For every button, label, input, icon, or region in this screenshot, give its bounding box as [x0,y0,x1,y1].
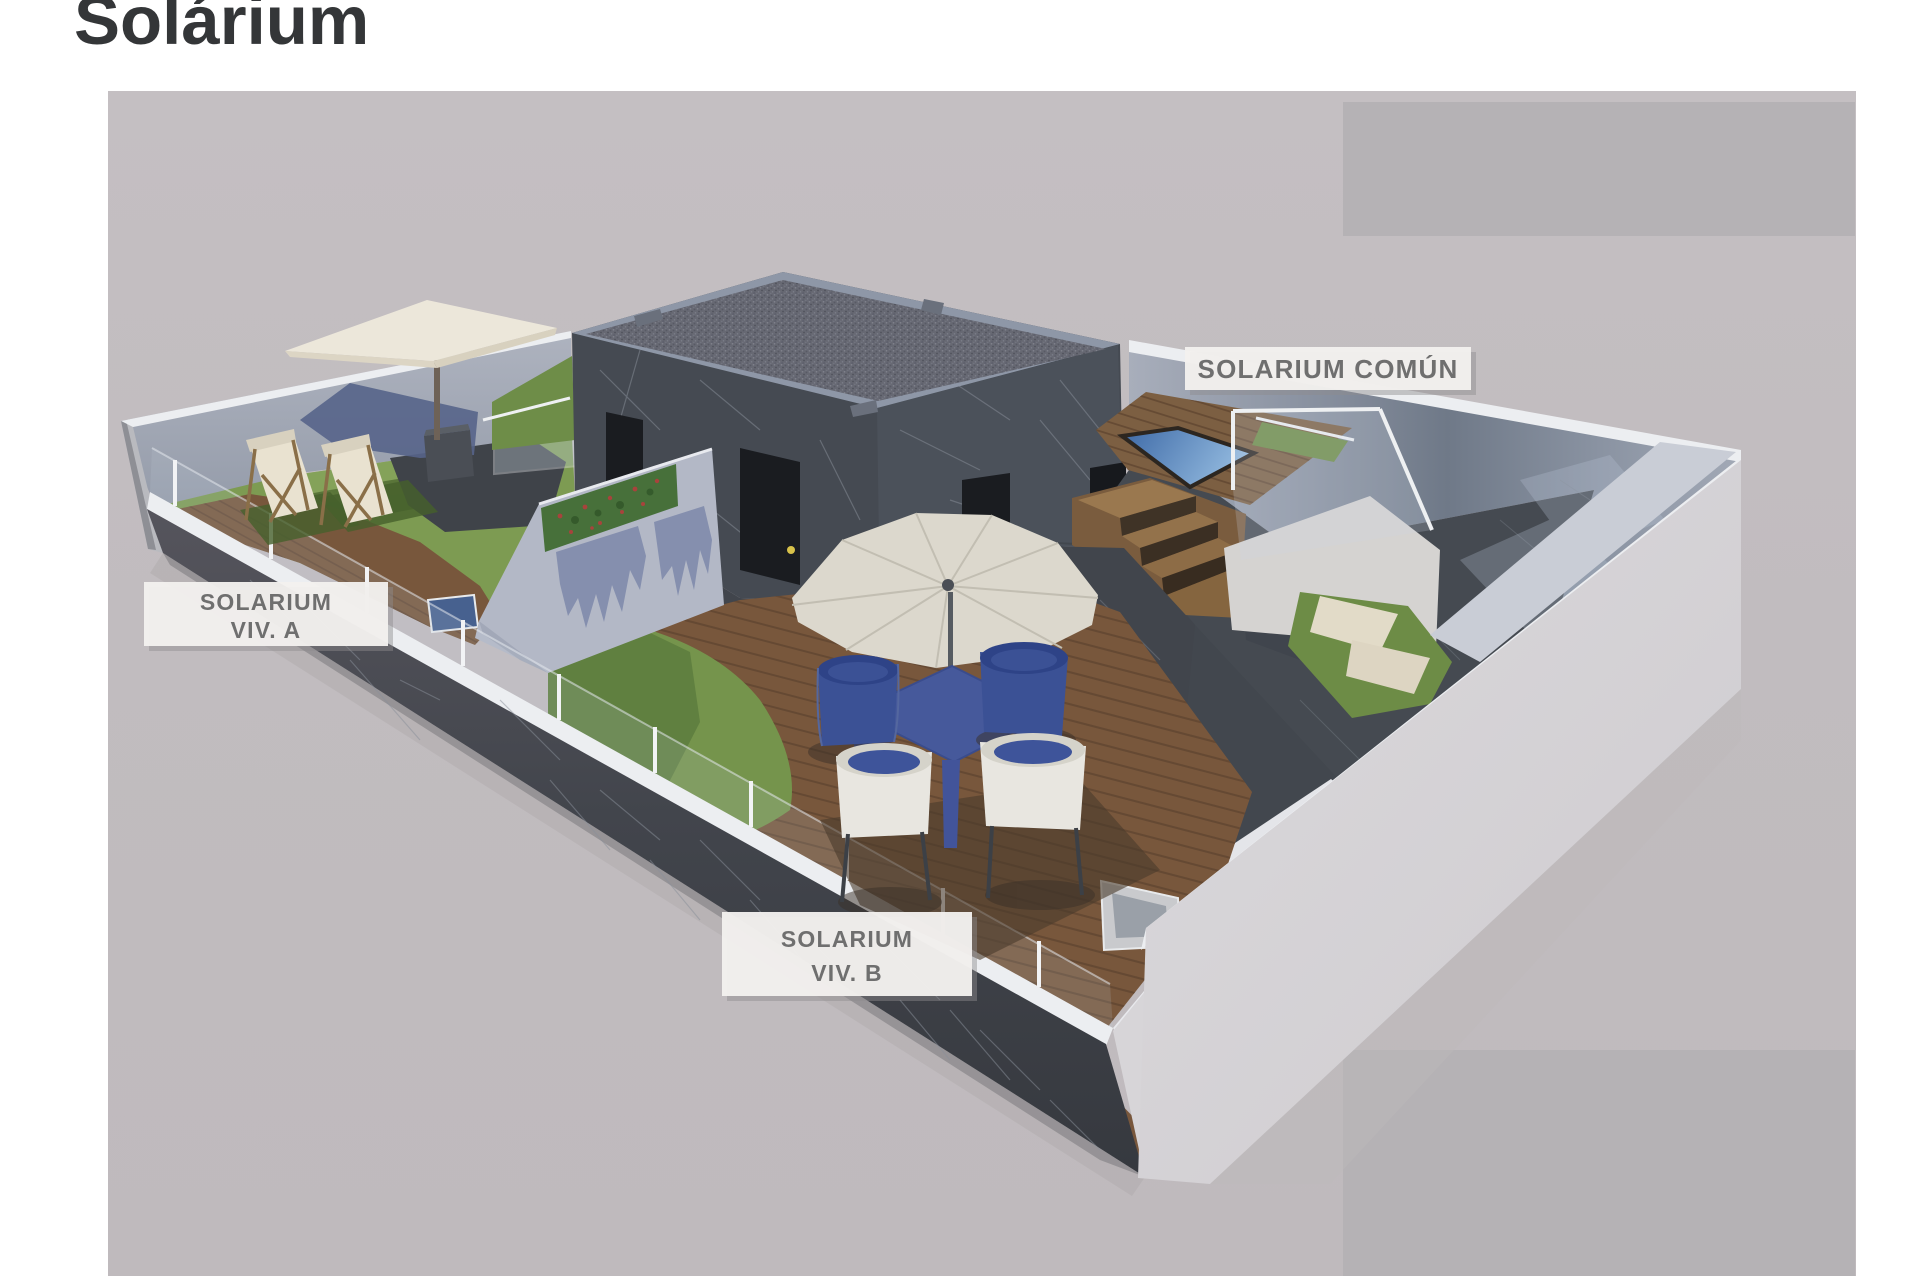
svg-text:SOLARIUM COMÚN: SOLARIUM COMÚN [1198,354,1459,384]
svg-text:SOLARIUM: SOLARIUM [200,589,332,615]
svg-text:Solárium: Solárium [74,0,369,59]
svg-text:VIV. A: VIV. A [231,617,302,643]
svg-text:VIV. B: VIV. B [811,960,883,986]
svg-text:SOLARIUM: SOLARIUM [781,926,913,952]
